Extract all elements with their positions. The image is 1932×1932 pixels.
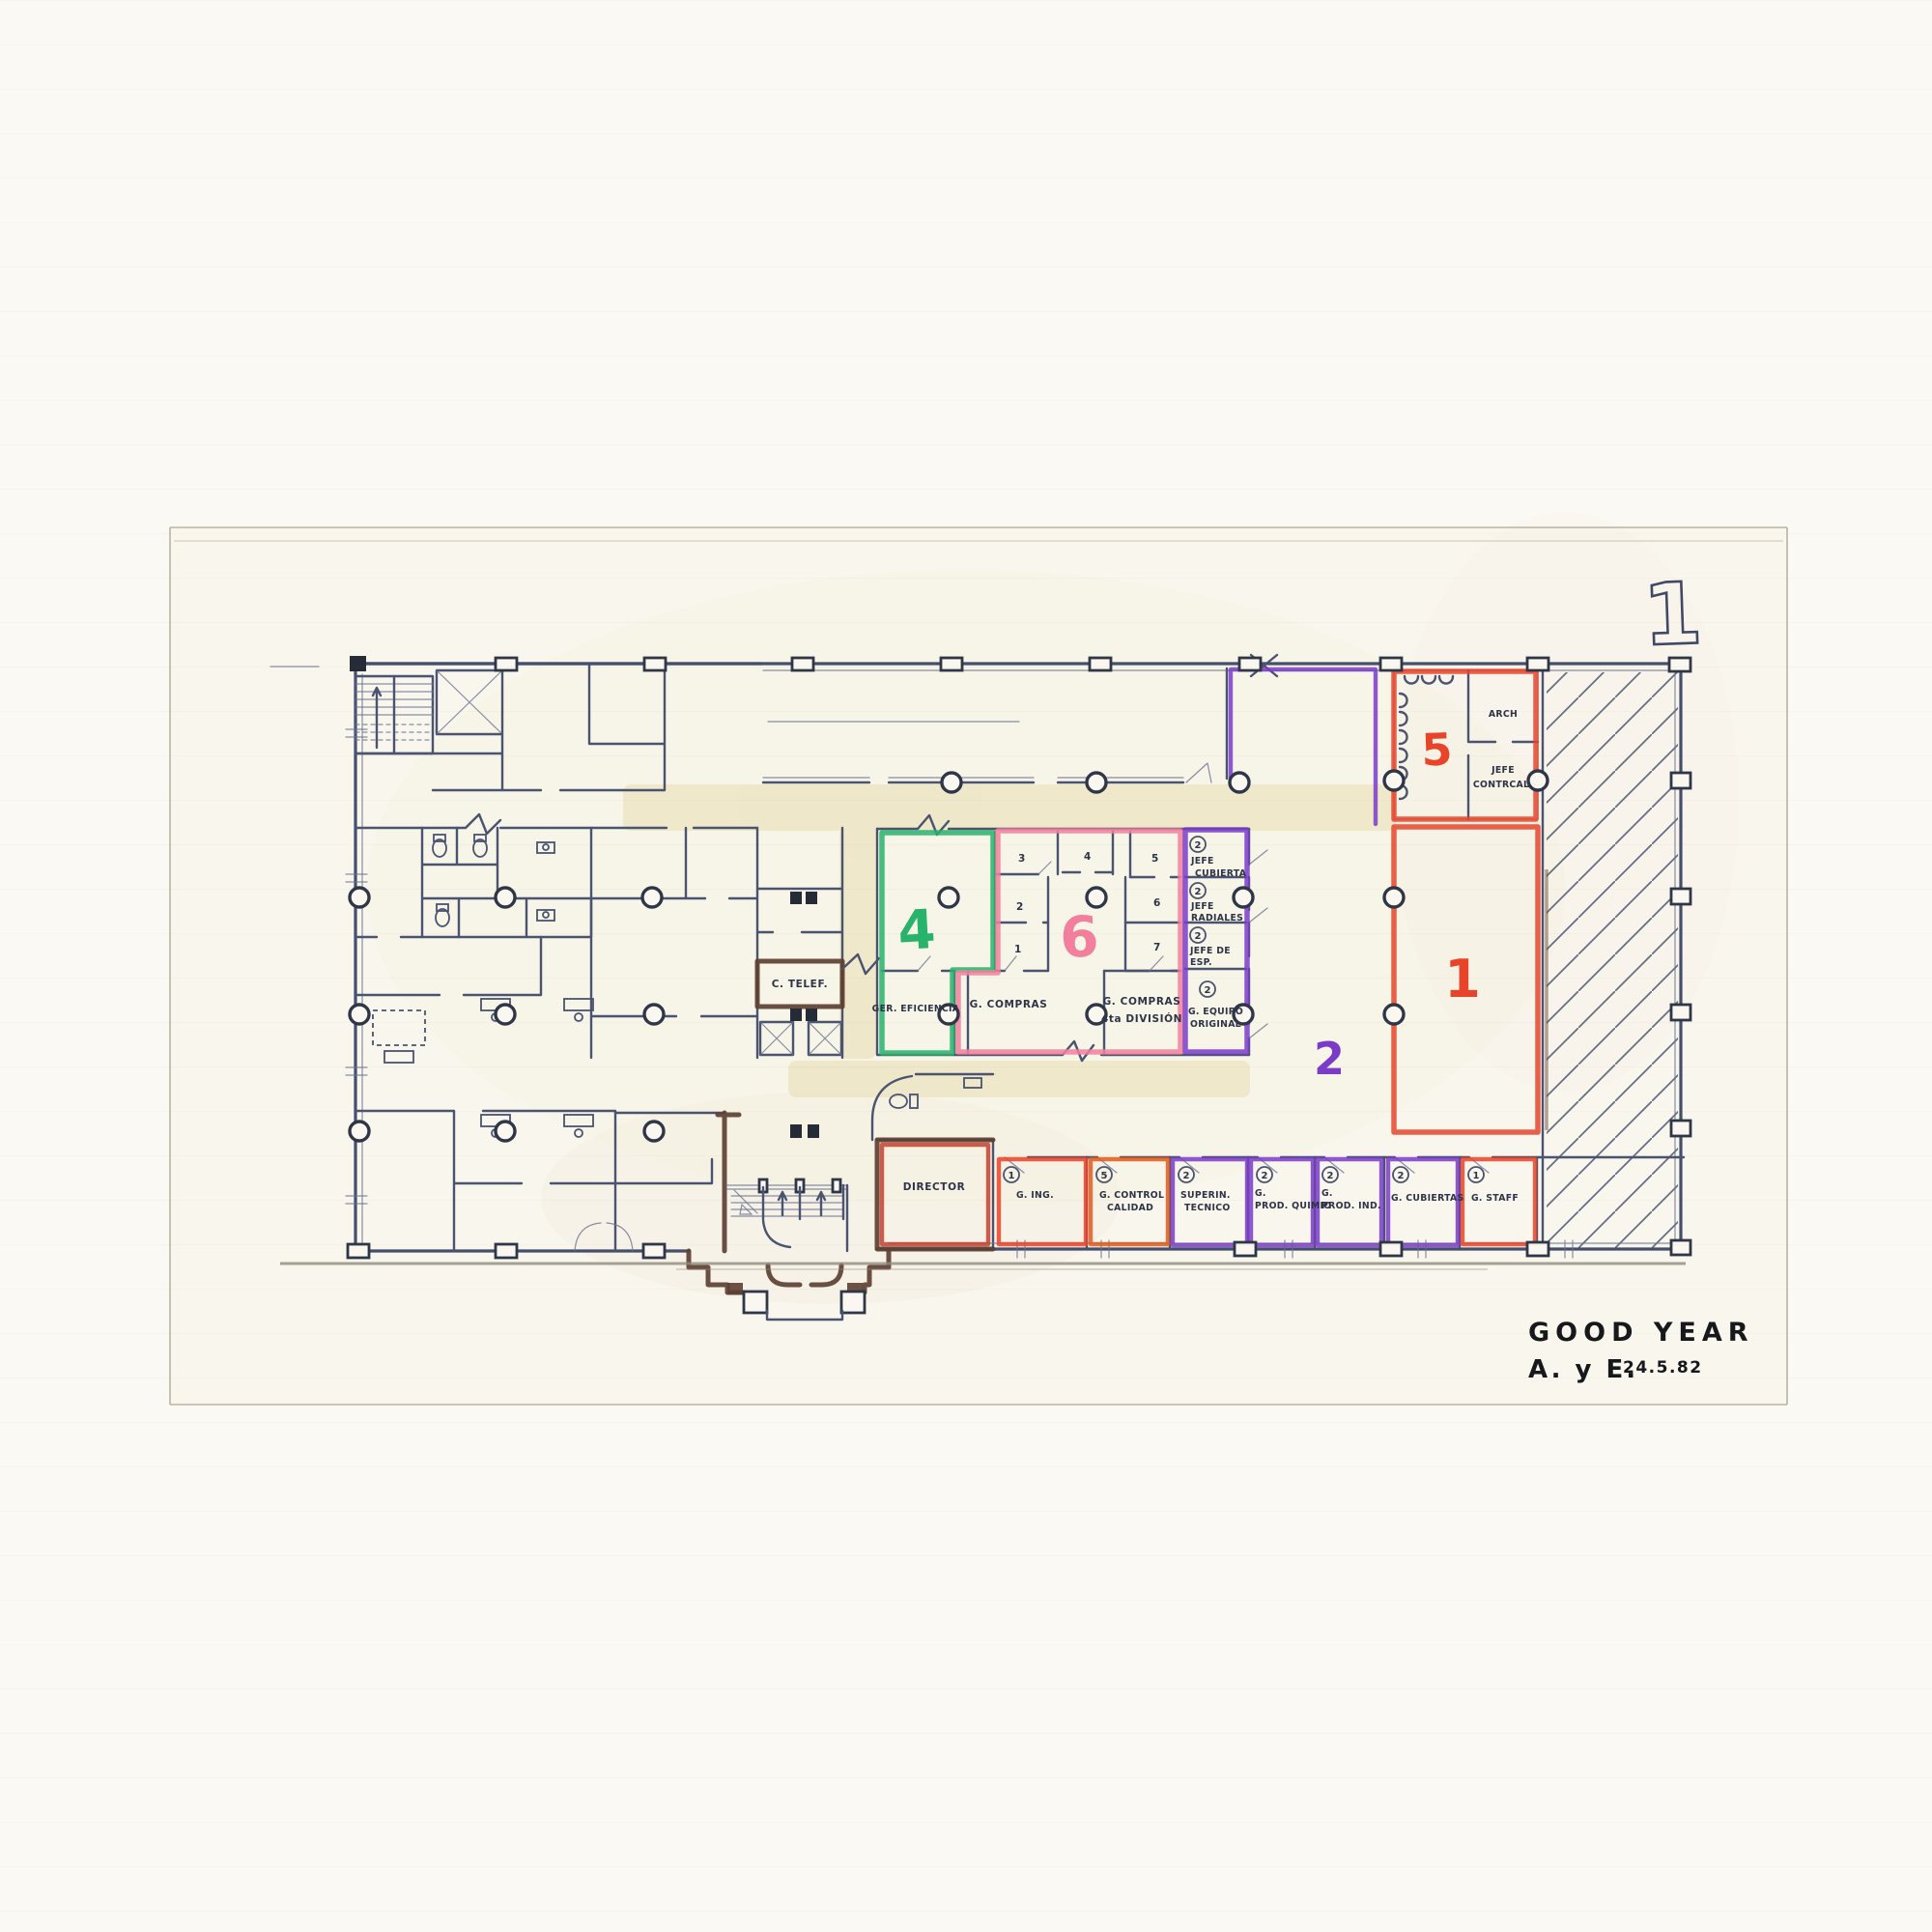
drawing-title: GOOD YEAR (1528, 1318, 1754, 1348)
svg-text:G.: G. (1321, 1188, 1333, 1199)
svg-text:1: 1 (1009, 1171, 1015, 1181)
director-label: DIRECTOR (903, 1181, 966, 1193)
hatched-area (1543, 664, 1681, 1252)
room-number-4: 4 (1084, 851, 1092, 863)
svg-text:G. STAFF: G. STAFF (1471, 1193, 1519, 1204)
svg-text:2: 2 (1262, 1171, 1268, 1181)
svg-text:JEFE: JEFE (1190, 856, 1214, 867)
svg-text:2: 2 (1327, 1171, 1334, 1181)
room-number-5: 5 (1151, 853, 1159, 865)
g-compras-label: G. COMPRAS (970, 999, 1048, 1010)
ger-eficiencia-label: GER. EFICIENCIA (872, 1004, 960, 1014)
sheet-number: 1 (1641, 563, 1704, 665)
svg-text:G. EQUIPO: G. EQUIPO (1188, 1007, 1243, 1017)
svg-text:ORIGINAL: ORIGINAL (1190, 1019, 1241, 1030)
room-number-1: 1 (1014, 944, 1022, 955)
zone4-number: 4 (896, 898, 937, 963)
zone5-number: 5 (1421, 723, 1454, 776)
c-telef-label: C. TELEF. (772, 979, 829, 990)
svg-text:JEFE DE: JEFE DE (1189, 946, 1231, 956)
drawing-sheet: 4 6 2 1 5 3 4 5 2 6 1 7 GER. EFICIENCIA … (0, 0, 1932, 1932)
g-compras-4ta-line2: 4ta DIVISIÓN (1101, 1012, 1182, 1025)
svg-text:5: 5 (1101, 1171, 1108, 1181)
svg-text:2: 2 (1205, 985, 1211, 996)
drawing-date: 24.5.82 (1623, 1358, 1703, 1378)
room-number-7: 7 (1153, 942, 1161, 953)
svg-text:RADIALES: RADIALES (1191, 913, 1243, 923)
room-number-3: 3 (1018, 853, 1026, 865)
g-compras-4ta-line1: G. COMPRAS (1103, 996, 1181, 1008)
zone6-number: 6 (1059, 903, 1100, 970)
arch-label: ARCH (1489, 709, 1518, 720)
svg-text:1: 1 (1473, 1171, 1480, 1181)
svg-text:CUBIERTA: CUBIERTA (1195, 868, 1247, 879)
jefe-contrcal-line1: JEFE (1491, 765, 1515, 776)
svg-text:JEFE: JEFE (1190, 901, 1214, 912)
svg-text:TECNICO: TECNICO (1184, 1203, 1231, 1213)
svg-text:PROD. QUIMIO: PROD. QUIMIO (1255, 1201, 1332, 1211)
svg-text:2: 2 (1398, 1171, 1405, 1181)
svg-text:SUPERIN.: SUPERIN. (1180, 1190, 1231, 1201)
jefe-contrcal-line2: CONTRCAL. (1473, 780, 1533, 790)
svg-text:G. ING.: G. ING. (1016, 1190, 1054, 1201)
svg-text:G.: G. (1255, 1188, 1266, 1199)
svg-text:2: 2 (1195, 887, 1202, 897)
floor-plan-svg: 4 6 2 1 5 3 4 5 2 6 1 7 GER. EFICIENCIA … (0, 0, 1932, 1932)
zone2-number: 2 (1314, 1033, 1345, 1085)
room-number-2: 2 (1016, 901, 1024, 913)
svg-text:2: 2 (1195, 931, 1202, 942)
svg-text:CALIDAD: CALIDAD (1107, 1203, 1153, 1213)
svg-text:2: 2 (1195, 840, 1202, 851)
svg-text:2: 2 (1183, 1171, 1190, 1181)
svg-text:PROD. IND.: PROD. IND. (1321, 1201, 1381, 1211)
svg-text:ESP.: ESP. (1190, 957, 1212, 968)
zone1-number: 1 (1444, 949, 1481, 1009)
svg-text:G. CUBIERTAS: G. CUBIERTAS (1391, 1193, 1464, 1204)
room-number-6: 6 (1153, 897, 1161, 909)
svg-text:G. CONTROL: G. CONTROL (1099, 1190, 1164, 1201)
